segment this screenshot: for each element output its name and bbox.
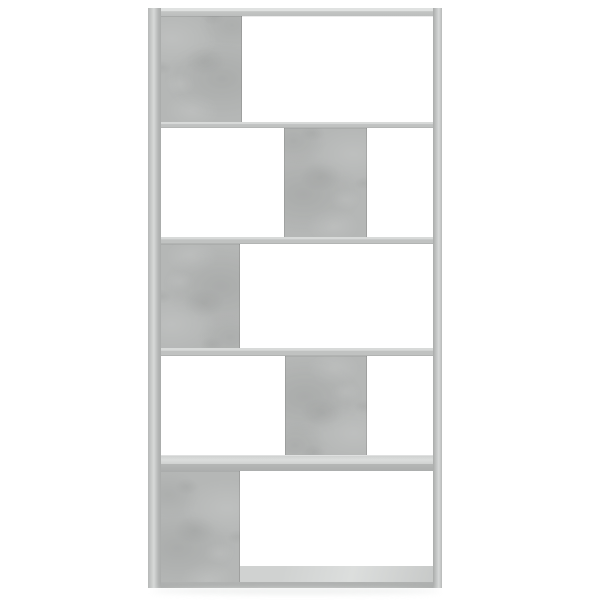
shelf-4-front-edge <box>148 464 442 471</box>
product-photo-canvas <box>0 0 600 600</box>
tier-2-panel <box>284 128 367 239</box>
tier-1-panel <box>158 12 242 124</box>
shelf-3 <box>148 348 442 356</box>
bookcase <box>148 8 442 588</box>
concrete-texture <box>284 128 367 239</box>
left-side-panel <box>148 8 161 588</box>
tier-3-panel <box>158 244 240 350</box>
ground-shadow <box>152 588 440 594</box>
top-panel <box>148 8 442 16</box>
shelf-2 <box>148 237 442 244</box>
tier-4-panel <box>285 356 367 457</box>
concrete-texture <box>158 471 240 582</box>
concrete-texture <box>285 356 367 457</box>
right-side-panel <box>433 8 442 588</box>
tier-5-panel-front <box>158 471 240 582</box>
concrete-texture <box>158 12 242 124</box>
concrete-texture <box>158 244 240 350</box>
shelf-1 <box>148 122 442 128</box>
